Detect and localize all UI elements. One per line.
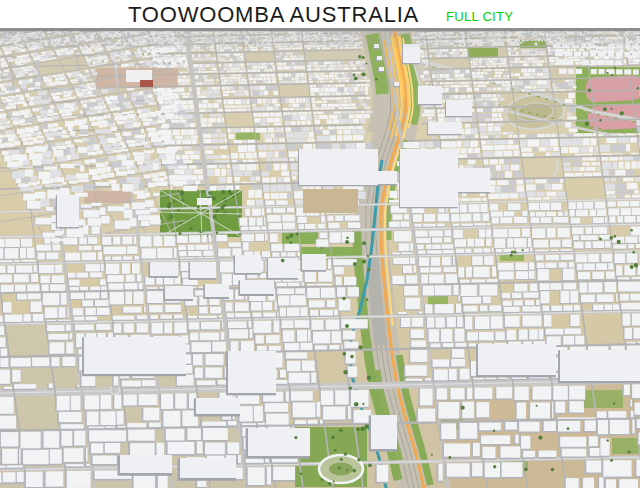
svg-text:TOOWOOMBA AUSTRALIA: TOOWOOMBA AUSTRALIA	[128, 2, 419, 27]
svg-text:FULL CITY: FULL CITY	[446, 9, 513, 24]
